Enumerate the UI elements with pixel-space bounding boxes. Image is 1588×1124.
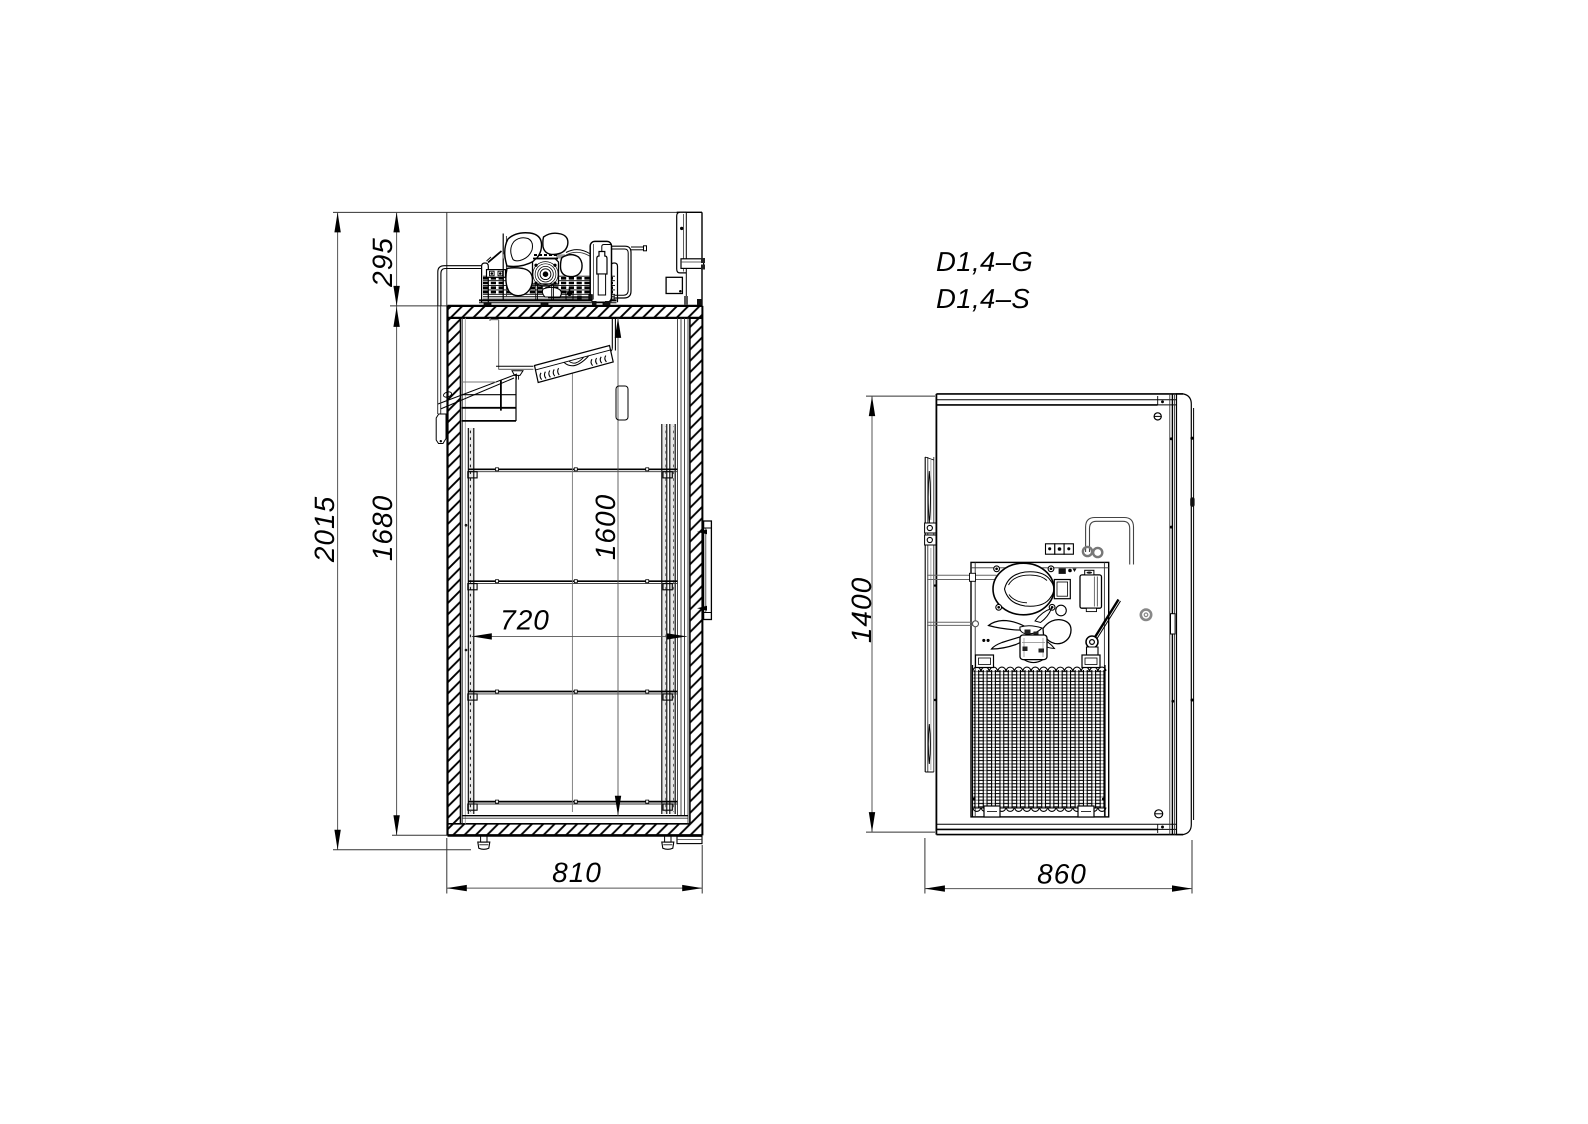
svg-text:860: 860: [1037, 858, 1087, 889]
svg-text:295: 295: [367, 237, 398, 288]
svg-text:D1,4–G: D1,4–G: [936, 246, 1033, 277]
svg-text:1600: 1600: [590, 494, 621, 560]
svg-text:810: 810: [552, 857, 602, 888]
svg-text:720: 720: [500, 604, 550, 635]
svg-text:1400: 1400: [846, 577, 877, 643]
svg-text:1680: 1680: [367, 495, 398, 561]
svg-text:2015: 2015: [309, 496, 340, 563]
svg-text:D1,4–S: D1,4–S: [936, 283, 1030, 314]
